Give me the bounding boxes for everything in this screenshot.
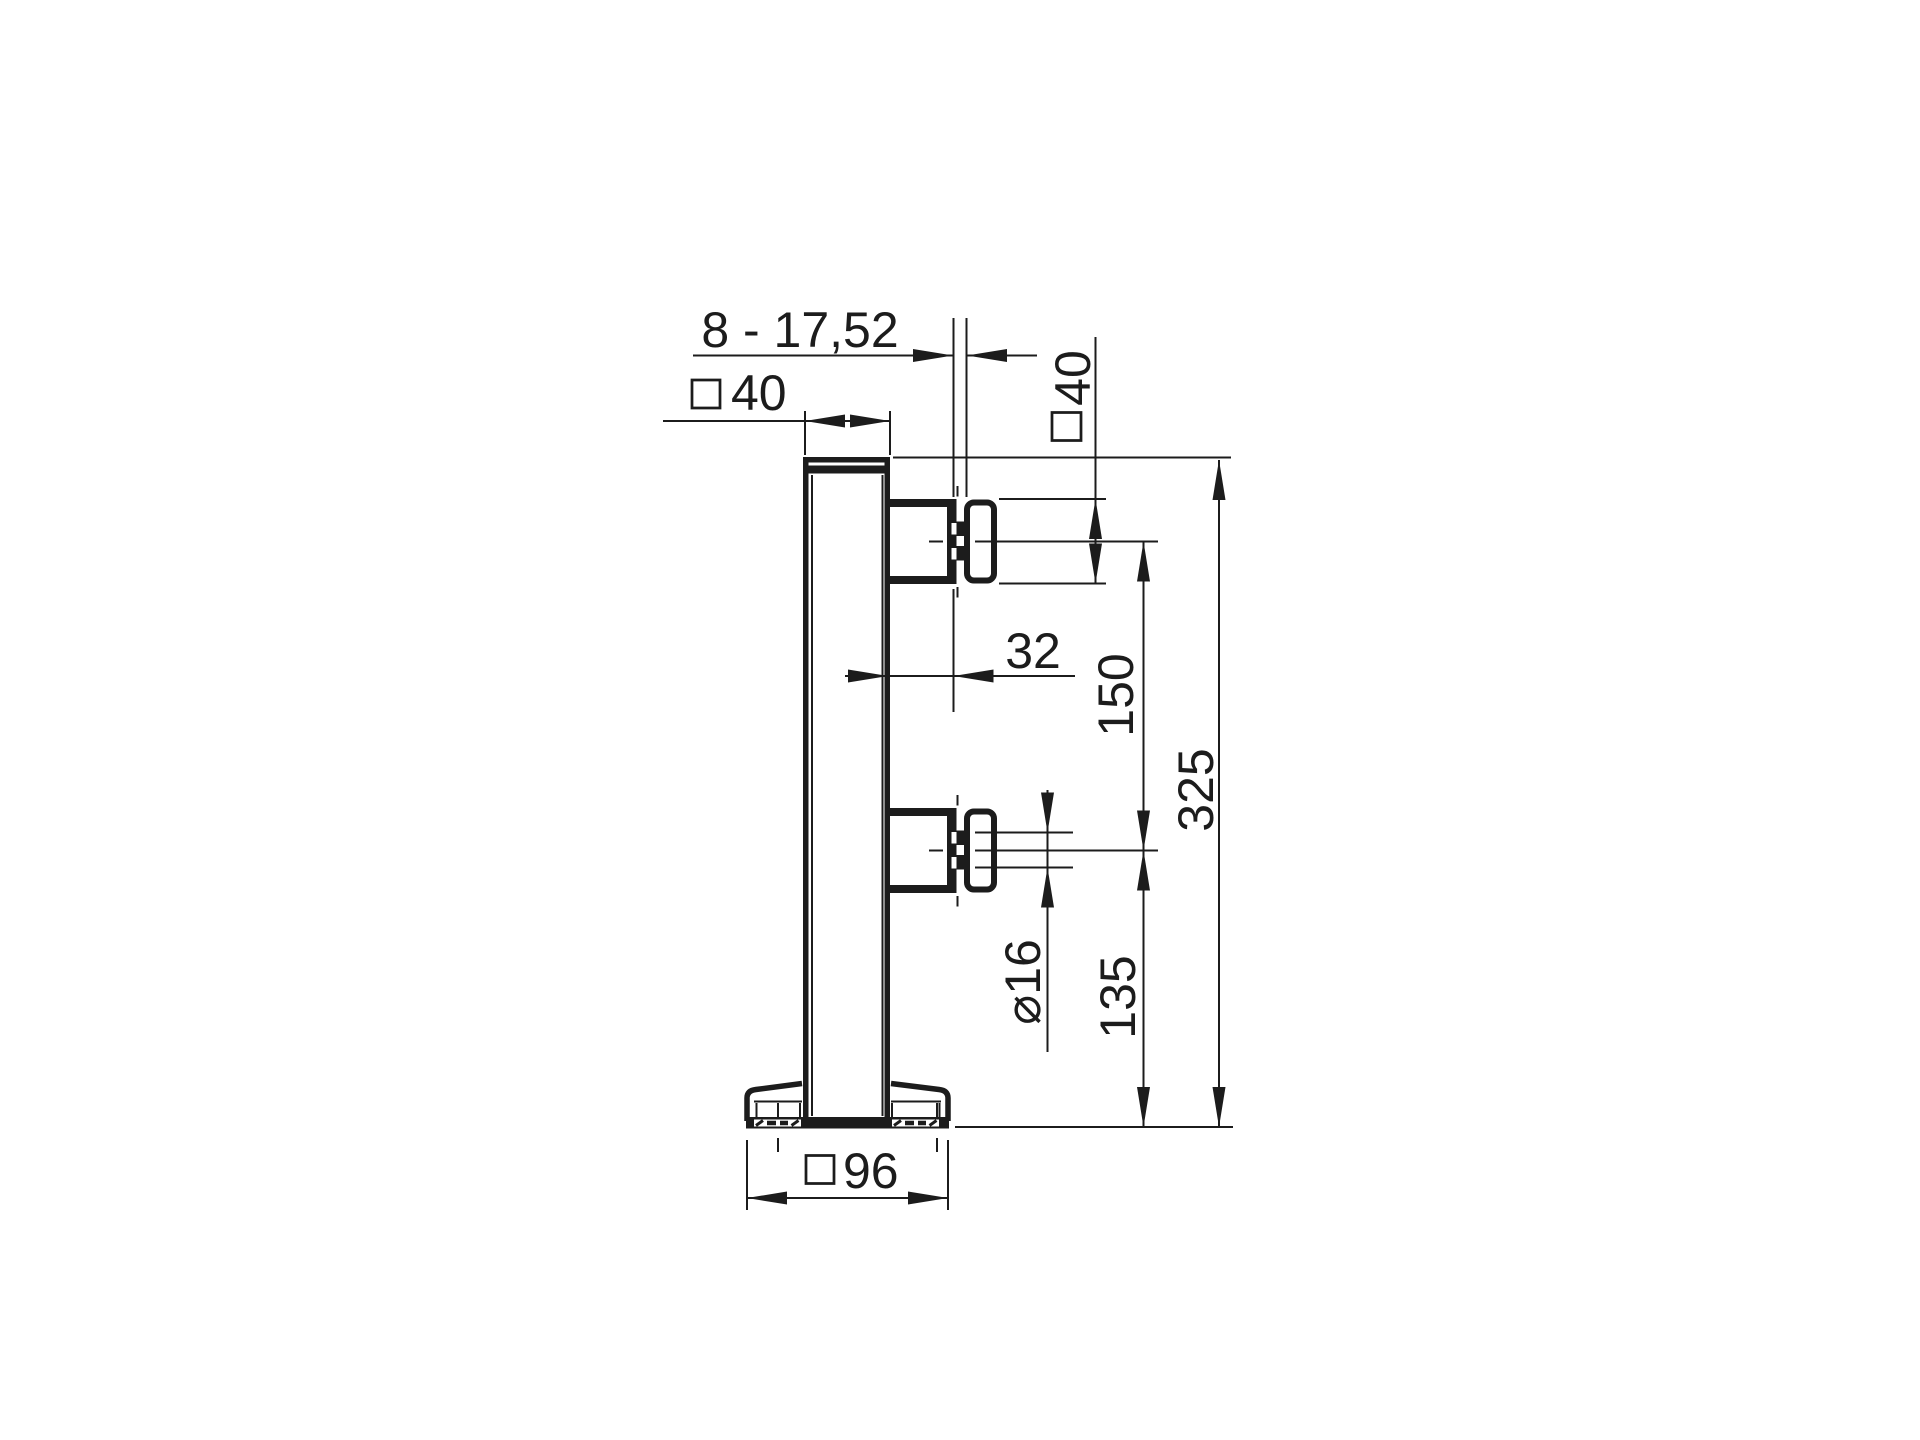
drawing-background bbox=[0, 0, 1920, 1440]
technical-drawing: 8 - 17,52 40 40 32 150 bbox=[0, 0, 1920, 1440]
lower-clamp-notch-a bbox=[952, 832, 957, 844]
upper-clamp-notch-a bbox=[952, 523, 957, 535]
lower-clamp-height-dim-label: 135 bbox=[1090, 955, 1146, 1038]
post-top-cap-lower bbox=[803, 466, 890, 474]
lower-clamp-bottom-band bbox=[888, 885, 957, 893]
base-width-dim-label: 96 bbox=[843, 1143, 899, 1199]
glass-thickness-dim-label: 8 - 17,52 bbox=[701, 302, 898, 358]
overall-height-dim-label: 325 bbox=[1168, 748, 1224, 831]
upper-clamp-top-band bbox=[888, 499, 957, 507]
lower-clamp-notch-b bbox=[952, 857, 957, 869]
post-wall-right bbox=[885, 457, 891, 1121]
post-top-cap-upper bbox=[803, 457, 890, 463]
lower-clamp-jaw bbox=[947, 808, 957, 893]
post-wall-left bbox=[803, 457, 809, 1121]
upper-clamp-notch-b bbox=[952, 548, 957, 560]
upper-clamp-jaw bbox=[947, 499, 957, 584]
upper-clamp-bottom-band bbox=[888, 576, 957, 584]
lower-clamp-top-band bbox=[888, 808, 957, 816]
clamp-size-dim-label: 40 bbox=[1045, 350, 1101, 406]
glass-offset-dim-label: 32 bbox=[1005, 623, 1061, 679]
clamp-spacing-dim-label: 150 bbox=[1088, 653, 1144, 736]
post-width-dim-label: 40 bbox=[731, 365, 787, 421]
connector-diameter-dim-label: ⌀16 bbox=[995, 939, 1051, 1025]
